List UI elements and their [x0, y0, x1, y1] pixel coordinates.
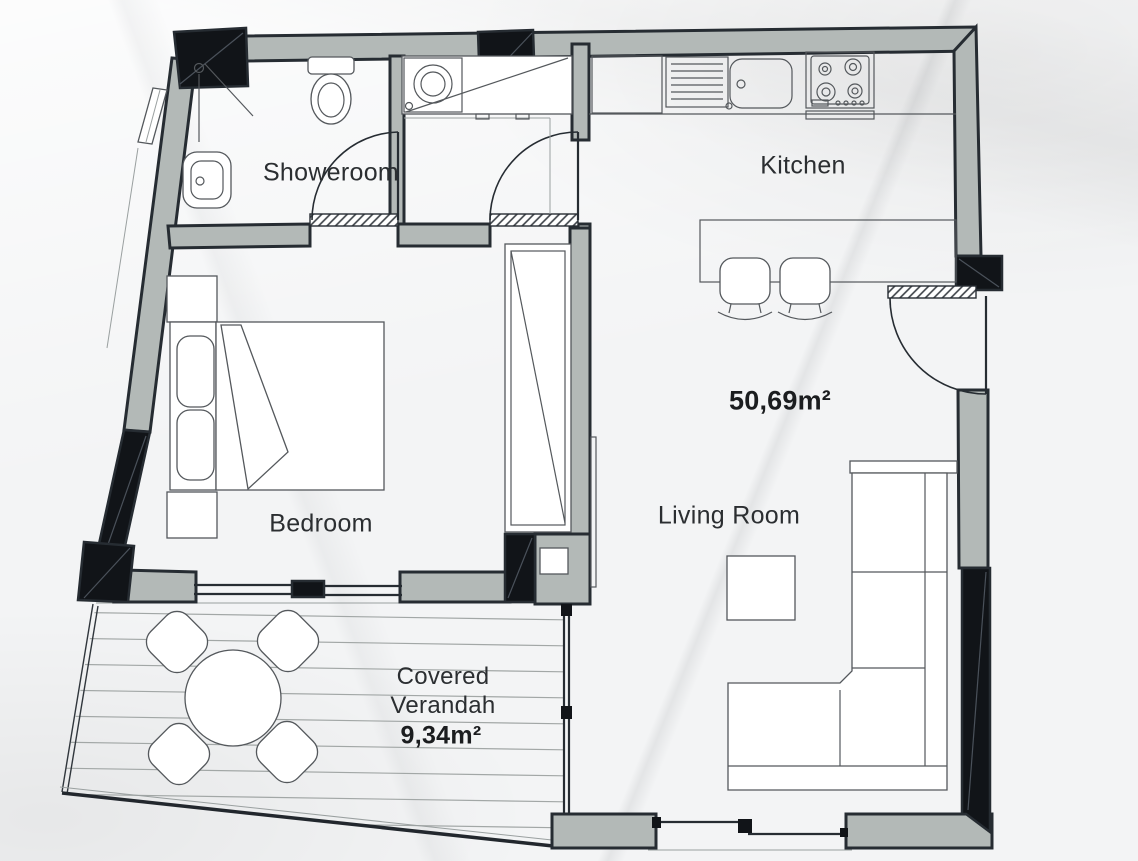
- bedroom-bottom-wall-right: [400, 572, 510, 602]
- doors: [310, 118, 986, 394]
- bottom-wall-left: [552, 814, 656, 848]
- washbasin-icon: [183, 152, 231, 208]
- verandah-left-edge: [62, 604, 93, 792]
- kitchen-label: Kitchen: [760, 152, 846, 181]
- living-room-label: Living Room: [658, 502, 800, 531]
- pillow-icon: [177, 336, 214, 407]
- verandah-label-line2: Verandah: [390, 692, 495, 720]
- round-table-icon: [185, 650, 281, 746]
- bar-stool-icon: [718, 258, 772, 320]
- coffee-table-icon: [727, 556, 795, 620]
- total-area-label: 50,69m²: [729, 386, 831, 417]
- verandah-glass-wall: [561, 604, 572, 814]
- bedroom-window-1: [194, 585, 293, 594]
- verandah-area-label: 9,34m²: [400, 722, 481, 751]
- bar-stool-icon: [778, 258, 832, 320]
- base-cabinet-icon: [592, 56, 662, 113]
- nightstand-icon: [167, 492, 217, 538]
- kitchen-hall-wall: [572, 44, 589, 140]
- verandah-furniture: [140, 604, 325, 791]
- washing-machine-closet: [402, 56, 572, 119]
- drainer-icon: [666, 57, 728, 107]
- pillar-bedroom-left: [78, 542, 134, 602]
- bedroom-window-2: [323, 586, 402, 595]
- bedroom-label: Bedroom: [269, 510, 373, 539]
- wardrobe-icon: [505, 244, 571, 532]
- niche-inset: [540, 548, 568, 574]
- kitchen-sink-icon: [726, 59, 792, 109]
- nightstand-icon: [167, 276, 217, 322]
- showeroom-label: Showeroom: [263, 159, 399, 188]
- entrance-threshold: [888, 286, 976, 298]
- pocket-strip: [591, 437, 596, 587]
- floorplan-page: Showeroom Kitchen 50,69m² Bedroom Living…: [0, 0, 1138, 861]
- verandah-label-line1: Covered: [397, 663, 490, 691]
- hall-door-threshold: [490, 214, 578, 226]
- toilet-icon: [308, 57, 354, 124]
- hall-door: [404, 118, 578, 226]
- showeroom-door-threshold: [310, 214, 398, 226]
- corner-column-top-left: [174, 28, 248, 88]
- window-mullion-block: [292, 581, 324, 597]
- hall-bedroom-wall: [398, 224, 490, 246]
- hob-icon: [806, 52, 874, 119]
- bottom-wall-right: [846, 814, 992, 848]
- floorplan-drawing: [0, 0, 1138, 861]
- right-wall-mid: [958, 390, 988, 568]
- right-wall-upper: [954, 27, 981, 256]
- showeroom-bedroom-wall: [168, 224, 310, 248]
- pillow-icon: [177, 410, 214, 480]
- kitchen-fixtures: [589, 52, 956, 320]
- entrance-door: [888, 286, 986, 394]
- living-room-sliding-door: [648, 817, 852, 850]
